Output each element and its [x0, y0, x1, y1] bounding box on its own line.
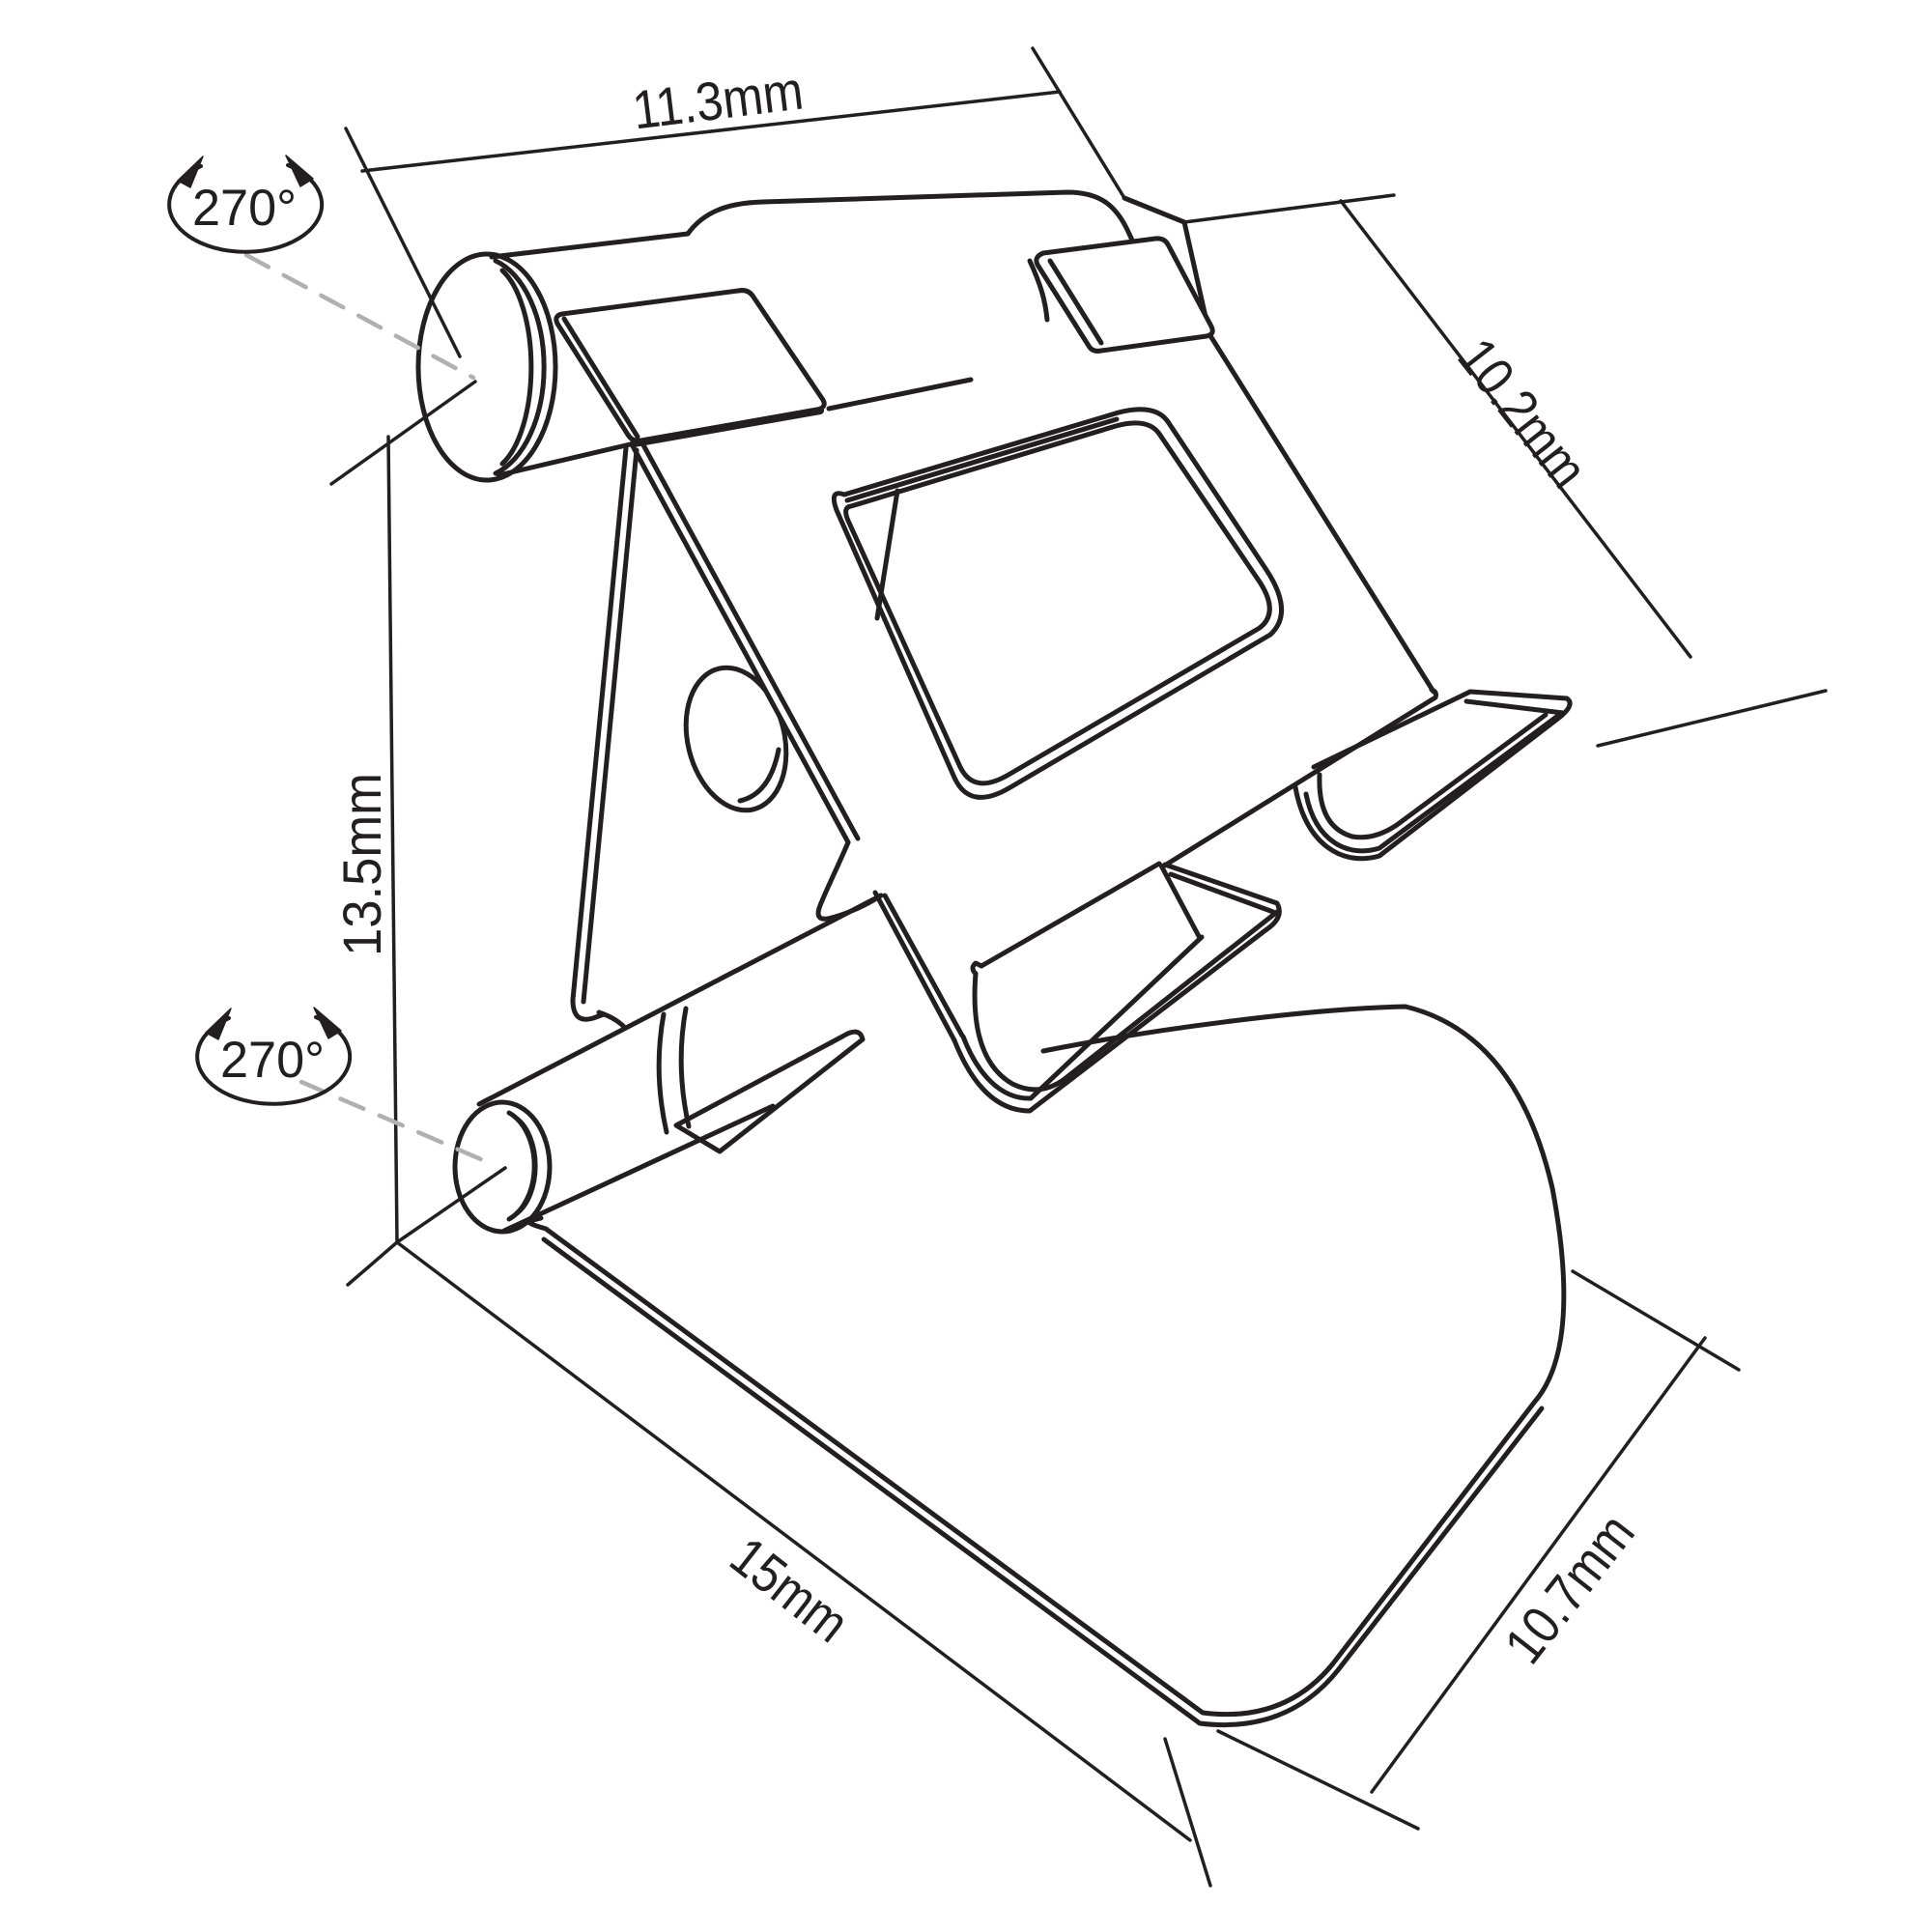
svg-text:270°: 270° [192, 180, 297, 237]
svg-text:270°: 270° [220, 1032, 325, 1089]
svg-text:13.5mm: 13.5mm [331, 773, 392, 956]
